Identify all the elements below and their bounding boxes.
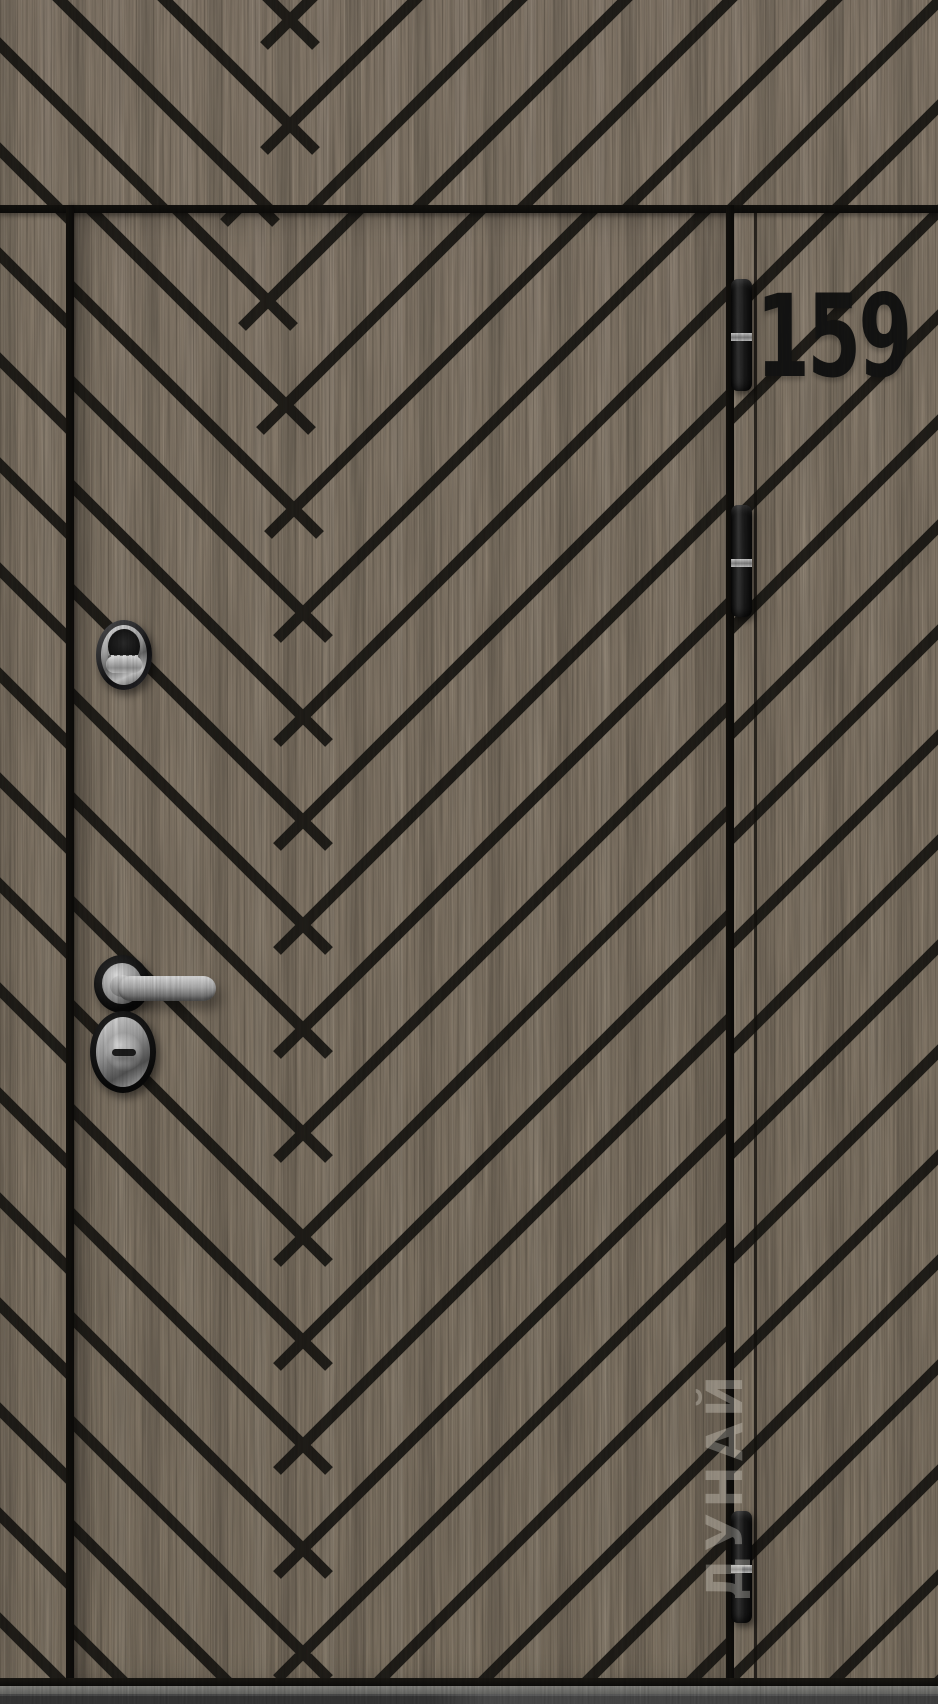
night-latch-escutcheon xyxy=(96,620,152,690)
threshold-sill-top xyxy=(0,1686,938,1694)
brand-watermark: ДУНАЙ xyxy=(696,1336,780,1636)
threshold-sill-face xyxy=(0,1694,938,1704)
hinge-steel-band xyxy=(731,559,752,567)
door-leaf xyxy=(74,213,726,1678)
leaf-groove-pattern xyxy=(74,213,726,1678)
frame-leaf-top-gap xyxy=(0,205,938,213)
leaf-bottom-joint xyxy=(0,1678,938,1686)
hinge-middle xyxy=(731,505,752,617)
hinge-top xyxy=(731,279,752,391)
door-model-number: 159 xyxy=(756,280,910,394)
door-product-photo: 159 ДУНАЙ xyxy=(0,0,938,1704)
frame-leaf-left-gap xyxy=(66,205,74,1686)
cylinder-lock xyxy=(90,1011,156,1093)
door-handle-lever xyxy=(118,976,216,1001)
hinge-steel-band xyxy=(731,333,752,341)
cylinder-keyway xyxy=(112,1049,136,1056)
night-latch-cover-flap xyxy=(106,656,142,673)
